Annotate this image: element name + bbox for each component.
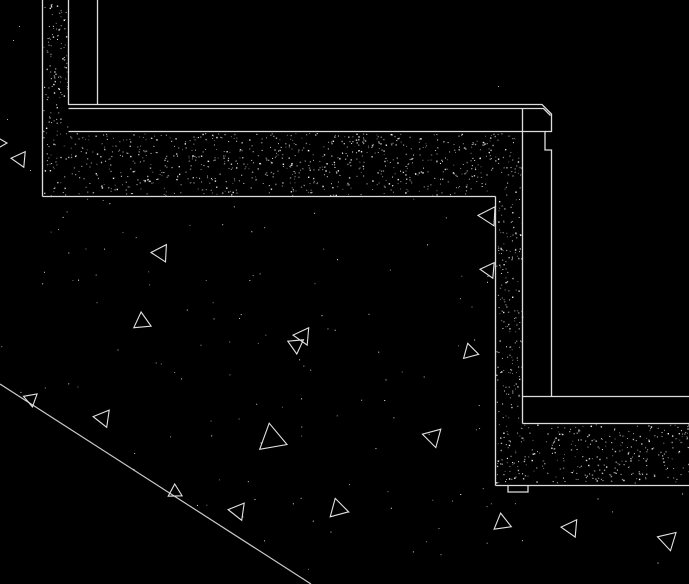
cad-drawing	[0, 0, 689, 584]
soil-dots	[1, 199, 683, 570]
section-outlines	[43, 0, 689, 492]
coping-top-inner	[69, 109, 551, 116]
ambient-dots	[7, 26, 499, 171]
aggregate-triangle-icon	[228, 503, 244, 520]
aggregate-triangle-icon	[293, 328, 309, 345]
aggregate-triangle-icon	[464, 343, 479, 358]
aggregate-triangle-icon	[422, 429, 440, 447]
aggregate-triangle-icon	[0, 135, 7, 151]
aggregate-triangle-icon	[93, 410, 109, 427]
aggregate-triangle-icon	[561, 520, 577, 537]
aggregate-triangle-icon	[151, 245, 166, 262]
aggregate-triangle-icon	[478, 207, 495, 226]
grade-line	[0, 384, 311, 584]
coping-underside-drip	[69, 132, 552, 397]
cad-viewport[interactable]	[0, 0, 689, 584]
aggregate-triangle-icon	[658, 533, 677, 551]
concrete-hatch	[43, 4, 689, 484]
aggregate-symbols	[0, 135, 676, 551]
aggregate-triangle-icon	[260, 423, 287, 449]
aggregate-triangle-icon	[288, 340, 304, 354]
footing-key-notch	[508, 486, 528, 493]
aggregate-triangle-icon	[330, 498, 348, 516]
aggregate-triangle-icon	[494, 513, 511, 529]
aggregate-triangle-icon	[480, 263, 494, 279]
aggregate-triangle-icon	[134, 312, 151, 328]
aggregate-triangle-icon	[11, 152, 25, 168]
aggregate-triangle-icon	[168, 484, 182, 496]
